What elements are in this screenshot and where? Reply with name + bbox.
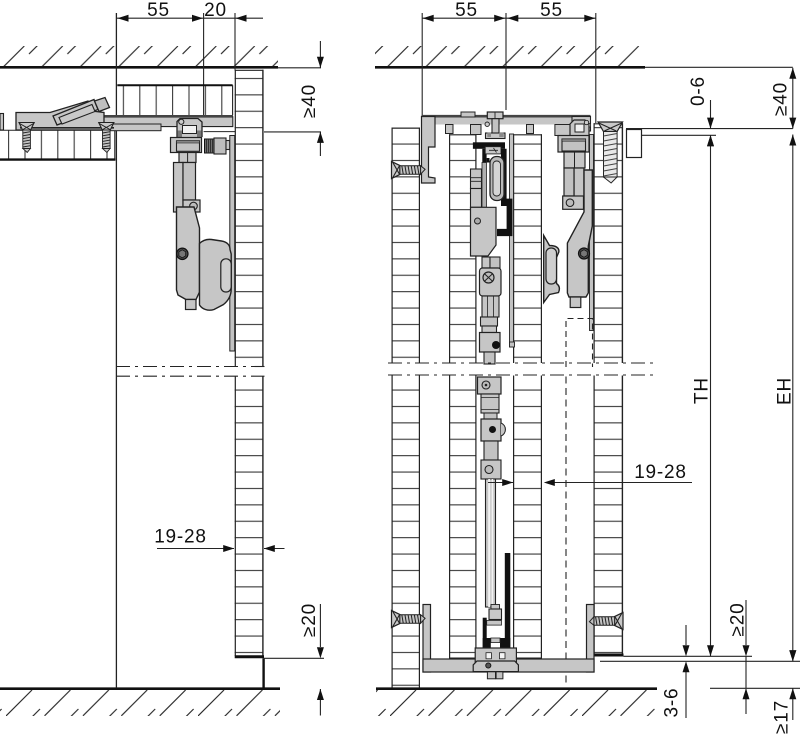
svg-text:0-6: 0-6 — [688, 76, 709, 106]
svg-text:19-28: 19-28 — [154, 527, 207, 548]
svg-text:20: 20 — [204, 0, 227, 21]
svg-text:EH: EH — [775, 377, 796, 405]
svg-text:≥20: ≥20 — [299, 603, 320, 637]
svg-text:55: 55 — [540, 0, 563, 21]
svg-text:TH: TH — [692, 377, 713, 404]
svg-text:≥40: ≥40 — [299, 84, 320, 118]
svg-text:≥17: ≥17 — [772, 700, 793, 734]
svg-text:≥20: ≥20 — [728, 603, 749, 637]
svg-text:19-28: 19-28 — [634, 462, 687, 483]
svg-text:55: 55 — [147, 0, 170, 21]
svg-text:≥40: ≥40 — [771, 82, 792, 116]
svg-text:3-6: 3-6 — [662, 688, 683, 718]
svg-text:55: 55 — [455, 0, 478, 21]
